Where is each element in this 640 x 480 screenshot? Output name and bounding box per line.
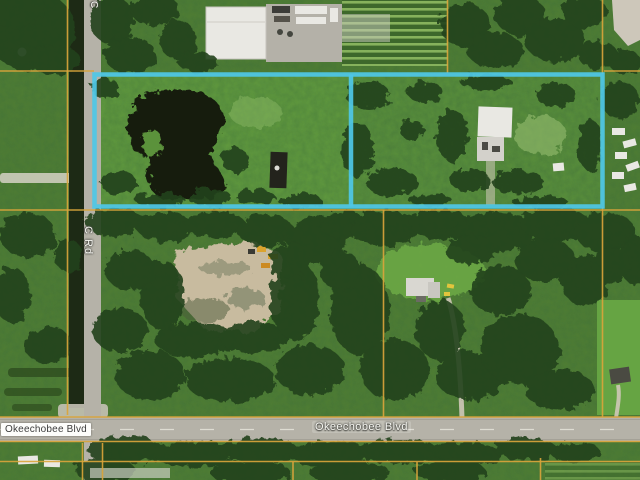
construction-equipment: [257, 246, 266, 252]
road-label-okeechobee-west: Okeechobee Blvd: [1, 423, 91, 436]
road-label-c-rd-top: C: [88, 1, 99, 8]
road-label-c-rd: C Rd: [82, 226, 94, 255]
shed: [18, 455, 38, 464]
road-label-okeechobee-center: Okeechobee Blvd: [312, 421, 411, 433]
house-roof-right-parcel: [477, 106, 512, 137]
small-shed: [553, 162, 565, 171]
warehouse-building: [206, 7, 266, 59]
truck-trailer: [295, 6, 327, 14]
house-roof-southeast: [609, 367, 631, 385]
dark-shed: [269, 152, 287, 189]
map-imagery: [0, 0, 640, 480]
field-rows-southeast: [545, 462, 640, 480]
satellite-map: Okeechobee Blvd Okeechobee Blvd C Rd C: [0, 0, 640, 480]
